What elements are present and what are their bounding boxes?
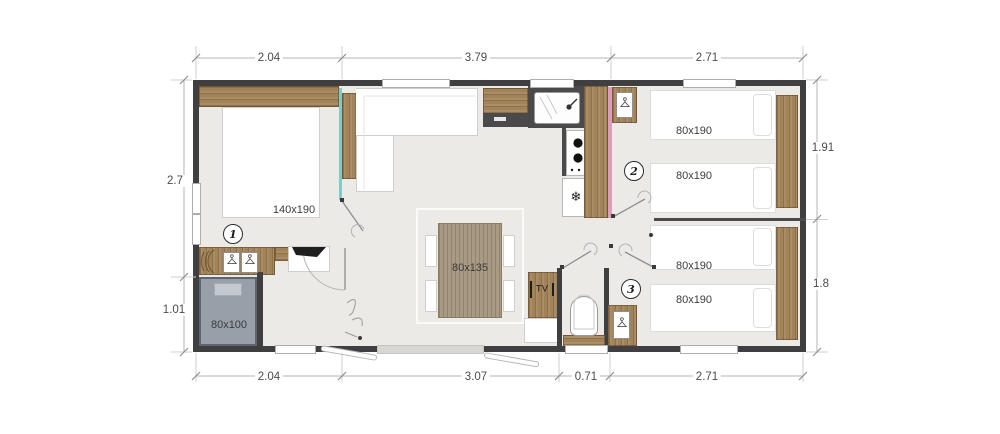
glass-partition bbox=[339, 88, 342, 200]
sink-basin bbox=[534, 92, 580, 124]
small-bed-pillow bbox=[214, 283, 242, 296]
kitchen-tall-column bbox=[584, 86, 608, 218]
tv-screen-edge bbox=[530, 281, 532, 298]
floor-plan: 140x190 80x100 1 80x135 TV ❄ bbox=[0, 0, 1000, 434]
hanger-panel-1 bbox=[223, 252, 240, 273]
hanger-panel-bedroom2 bbox=[616, 92, 633, 118]
room-number-3: 3 bbox=[621, 279, 641, 299]
bed-r3-b-label: 80x190 bbox=[676, 294, 712, 306]
dim-top-2: 3.79 bbox=[462, 52, 490, 64]
dim-left-2: 1.01 bbox=[160, 304, 188, 316]
hanger-panel-bedroom3 bbox=[613, 311, 630, 339]
bed-r2-b-pillow bbox=[753, 167, 772, 209]
hanger-icon bbox=[244, 253, 256, 272]
headboard-bedroom3 bbox=[776, 227, 798, 340]
bed-r2-b-label: 80x190 bbox=[676, 170, 712, 182]
wc-wall-left bbox=[557, 268, 562, 346]
chair bbox=[425, 280, 437, 312]
tv-cabinet bbox=[524, 318, 558, 343]
headboard-bedroom2 bbox=[776, 95, 798, 208]
entry-opening bbox=[377, 345, 484, 354]
dim-bottom-1: 2.04 bbox=[255, 371, 283, 383]
toilet-icon bbox=[570, 296, 598, 336]
sofa-seat bbox=[356, 88, 478, 136]
room-number-1: 1 bbox=[223, 224, 243, 244]
hanger-icon bbox=[619, 96, 631, 115]
dining-table-label: 80x135 bbox=[452, 262, 488, 274]
dim-left-1: 2.7 bbox=[164, 175, 186, 187]
entry-door-leaf bbox=[483, 352, 539, 368]
dim-right-1: 1.91 bbox=[809, 142, 837, 154]
double-bed-label: 140x190 bbox=[273, 204, 315, 216]
small-bed-label: 80x100 bbox=[211, 319, 247, 331]
window bbox=[192, 183, 201, 214]
headboard-shelf bbox=[199, 86, 339, 107]
window bbox=[192, 214, 201, 245]
dim-bottom-4: 2.71 bbox=[693, 371, 721, 383]
bed-r3-b-pillow bbox=[753, 288, 772, 328]
chair bbox=[425, 235, 437, 267]
bed-r3-a-pillow bbox=[753, 228, 772, 266]
hanger-icon bbox=[616, 316, 628, 335]
snowflake-icon: ❄ bbox=[571, 189, 582, 205]
bed-r2-a-pillow bbox=[753, 94, 772, 136]
dim-bottom-3: 0.71 bbox=[572, 371, 600, 383]
dim-bottom-2: 3.07 bbox=[462, 371, 490, 383]
hanger-icon bbox=[226, 253, 238, 272]
double-bed bbox=[222, 107, 320, 218]
dim-top-1: 2.04 bbox=[255, 52, 283, 64]
bed-r3-a-label: 80x190 bbox=[676, 260, 712, 272]
tv-screen-edge bbox=[552, 283, 554, 296]
drawer-handle bbox=[494, 117, 506, 121]
window bbox=[275, 345, 316, 354]
sliding-door-track bbox=[608, 87, 612, 218]
window bbox=[382, 79, 450, 88]
window bbox=[565, 345, 608, 354]
dim-top-3: 2.71 bbox=[693, 52, 721, 64]
room-number-2: 2 bbox=[624, 161, 644, 181]
chair bbox=[503, 280, 515, 312]
window bbox=[683, 79, 736, 88]
hanger-panel-2 bbox=[241, 252, 258, 273]
wall-small-bedroom bbox=[257, 272, 263, 346]
tv-label: TV bbox=[536, 284, 548, 295]
window bbox=[530, 79, 574, 88]
chair bbox=[503, 235, 515, 267]
kitchen-counter-left bbox=[483, 88, 528, 114]
bed-r2-a-label: 80x190 bbox=[676, 125, 712, 137]
partition-wardrobe bbox=[342, 93, 357, 179]
desk bbox=[288, 246, 330, 272]
dim-right-2: 1.8 bbox=[810, 278, 832, 290]
window bbox=[680, 345, 738, 354]
wall-bedroom-divider bbox=[654, 218, 806, 221]
